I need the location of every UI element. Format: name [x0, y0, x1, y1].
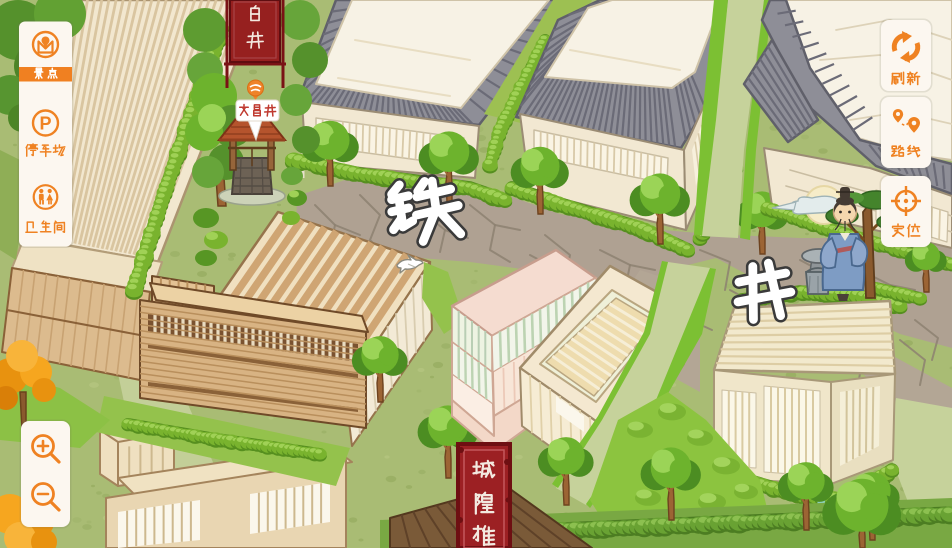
svg-text:P: P [39, 114, 51, 134]
